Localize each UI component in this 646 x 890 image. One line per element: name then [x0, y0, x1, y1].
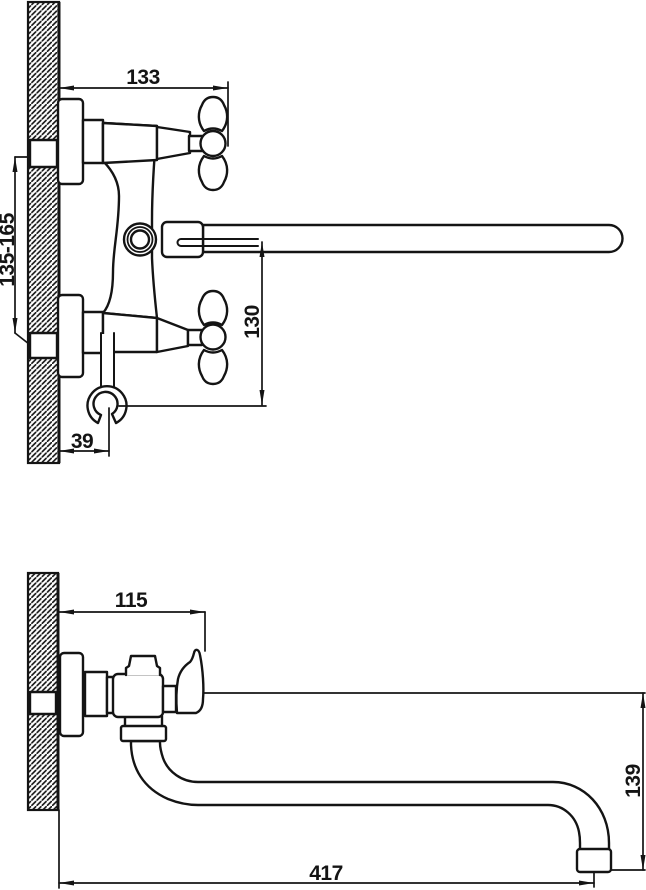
handle-hub	[201, 325, 226, 350]
cross-handle-upper	[199, 97, 227, 190]
handle-lobe	[199, 97, 227, 131]
adapter	[85, 672, 107, 716]
adapter-upper	[83, 120, 103, 163]
cross-handle-lower	[199, 291, 227, 384]
dimension-label: 133	[126, 66, 160, 89]
supply-pipe	[30, 692, 56, 714]
diverter-button	[124, 224, 156, 256]
diverter-knob	[126, 656, 160, 675]
supply-pipe-lower	[30, 333, 57, 358]
valve-body	[113, 674, 163, 717]
aerator	[577, 849, 611, 872]
dimension-label: 115	[115, 589, 148, 612]
diverter-ring-inner	[131, 231, 149, 249]
drawing-canvas: 133 135-165 130 39	[0, 0, 646, 890]
curved-spout	[131, 741, 609, 850]
handle-lobe	[199, 156, 227, 190]
handle-lobe	[199, 350, 227, 384]
handle-side-profile	[176, 650, 203, 713]
hook-neck-fill	[102, 334, 113, 386]
handle-lobe	[199, 291, 227, 325]
spout-tube	[203, 225, 623, 252]
dimension-label: 130	[241, 305, 264, 339]
spout-collar	[121, 726, 166, 741]
dimension-label: 417	[309, 862, 343, 885]
faucet-technical-drawing: 133 135-165 130 39	[0, 0, 646, 890]
dimension-417: 417	[59, 810, 594, 888]
front-view: 133 135-165 130 39	[0, 2, 623, 463]
handle-hub	[201, 131, 226, 156]
dimension-label: 39	[71, 430, 93, 453]
hook-ring	[88, 386, 127, 423]
dimension-label: 139	[622, 764, 645, 798]
wall-section	[28, 2, 59, 463]
supply-pipe-upper	[30, 140, 57, 167]
side-view: 115 139 417	[28, 573, 646, 888]
handle-bonnet	[163, 686, 176, 712]
dimension-115: 115	[59, 589, 205, 651]
dimension-133: 133	[59, 66, 228, 91]
escutcheon	[60, 653, 83, 736]
valve-sleeve-lower	[157, 318, 188, 352]
escutcheon-upper	[58, 99, 83, 184]
valve-sleeve-upper	[157, 127, 190, 159]
valve-channel-upper	[103, 123, 157, 163]
escutcheon-lower	[58, 295, 83, 377]
dimension-135-165: 135-165	[0, 157, 29, 344]
dimension-label: 135-165	[0, 212, 19, 286]
